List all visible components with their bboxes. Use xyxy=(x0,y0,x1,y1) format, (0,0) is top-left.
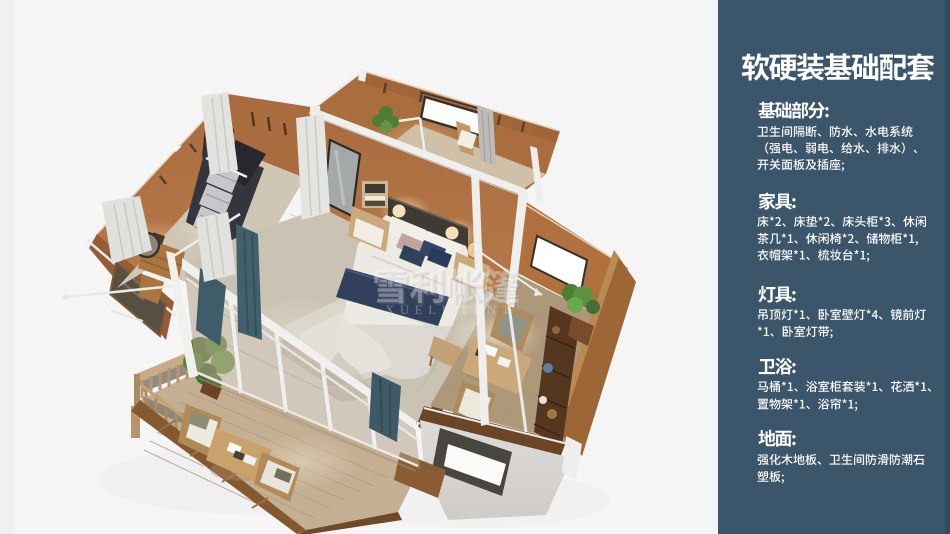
svg-text:XUELI TENT: XUELI TENT xyxy=(385,302,515,317)
